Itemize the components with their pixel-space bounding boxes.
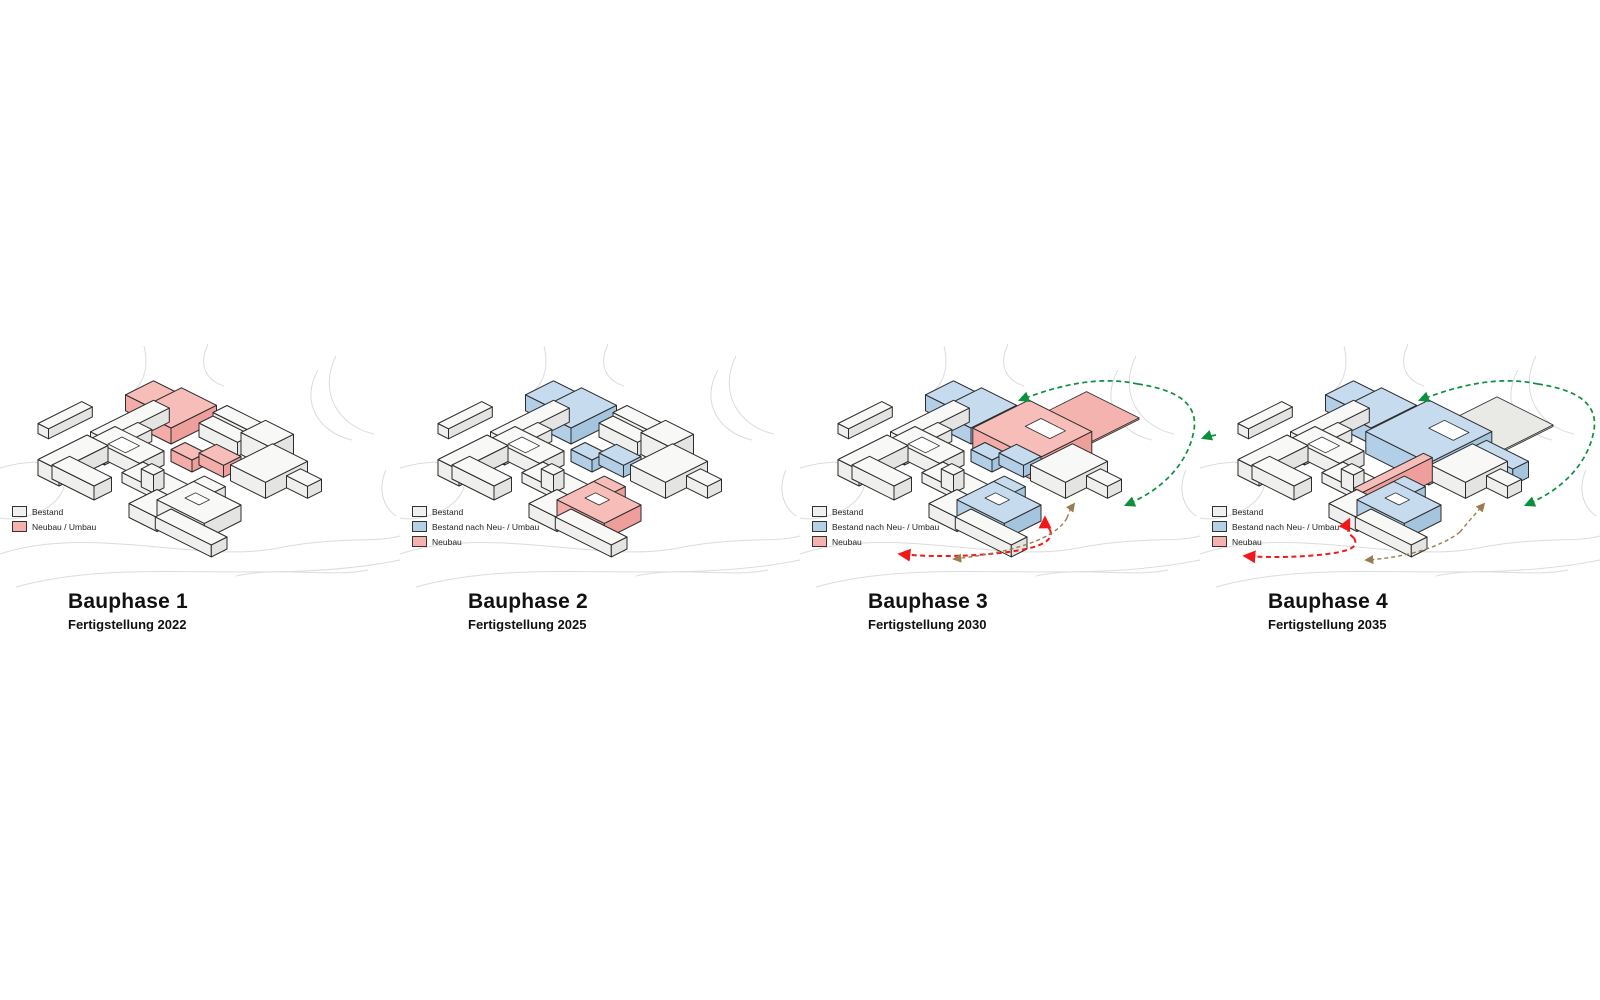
building-R4 bbox=[287, 469, 322, 499]
legend-swatch-bestand bbox=[412, 506, 427, 517]
building-R4 bbox=[1087, 469, 1122, 499]
phase-title: Bauphase 3 bbox=[868, 590, 988, 614]
building-SR bbox=[541, 464, 564, 493]
legend-item: Bestand bbox=[412, 506, 539, 517]
phasing-board: BestandNeubau / UmbauBauphase 1Fertigste… bbox=[0, 340, 1600, 660]
legend-p2: BestandBestand nach Neu- / UmbauNeubau bbox=[412, 506, 539, 551]
building-A bbox=[38, 402, 92, 439]
legend-swatch-umbau bbox=[812, 536, 827, 547]
legend-swatch-bestand bbox=[1212, 506, 1227, 517]
legend-item: Bestand bbox=[1212, 506, 1339, 517]
legend-label: Neubau bbox=[432, 537, 462, 547]
legend-swatch-umbau bbox=[412, 536, 427, 547]
legend-swatch-bestand bbox=[12, 506, 27, 517]
site-diagram-p4 bbox=[1200, 340, 1600, 600]
legend-swatch-umbau bbox=[1212, 536, 1227, 547]
site-diagram-p2 bbox=[400, 340, 800, 600]
legend-item: Bestand nach Neu- / Umbau bbox=[1212, 521, 1339, 532]
legend-item: Neubau bbox=[1212, 536, 1339, 547]
building-SR bbox=[941, 464, 964, 493]
legend-label: Neubau bbox=[832, 537, 862, 547]
legend-item: Bestand bbox=[812, 506, 939, 517]
phase-caption: Bauphase 2Fertigstellung 2025 bbox=[468, 590, 588, 632]
building-R4 bbox=[687, 469, 722, 499]
phase-panel-p2: BestandBestand nach Neu- / UmbauNeubauBa… bbox=[400, 340, 800, 660]
phase-subtitle: Fertigstellung 2035 bbox=[1268, 617, 1388, 632]
phase-caption: Bauphase 1Fertigstellung 2022 bbox=[68, 590, 188, 632]
legend-item: Bestand nach Neu- / Umbau bbox=[412, 521, 539, 532]
phase-panel-p1: BestandNeubau / UmbauBauphase 1Fertigste… bbox=[0, 340, 400, 660]
building-A bbox=[438, 402, 492, 439]
legend-label: Neubau / Umbau bbox=[32, 522, 96, 532]
phase-subtitle: Fertigstellung 2030 bbox=[868, 617, 988, 632]
legend-label: Bestand bbox=[832, 507, 863, 517]
phase-caption: Bauphase 3Fertigstellung 2030 bbox=[868, 590, 988, 632]
legend-label: Bestand nach Neu- / Umbau bbox=[1232, 522, 1339, 532]
building-SR bbox=[141, 464, 164, 493]
legend-label: Bestand nach Neu- / Umbau bbox=[432, 522, 539, 532]
legend-label: Bestand bbox=[32, 507, 63, 517]
legend-p3: BestandBestand nach Neu- / UmbauNeubau bbox=[812, 506, 939, 551]
legend-swatch-umbau bbox=[12, 521, 27, 532]
legend-swatch-blau bbox=[812, 521, 827, 532]
legend-item: Neubau bbox=[812, 536, 939, 547]
building-A bbox=[838, 402, 892, 439]
phase-panel-p4: BestandBestand nach Neu- / UmbauNeubauBa… bbox=[1200, 340, 1600, 660]
legend-item: Neubau bbox=[412, 536, 539, 547]
site-diagram-p1 bbox=[0, 340, 400, 600]
phase-panel-p3: BestandBestand nach Neu- / UmbauNeubauBa… bbox=[800, 340, 1200, 660]
legend-swatch-bestand bbox=[812, 506, 827, 517]
phase-title: Bauphase 2 bbox=[468, 590, 588, 614]
phase-caption: Bauphase 4Fertigstellung 2035 bbox=[1268, 590, 1388, 632]
legend-label: Bestand bbox=[432, 507, 463, 517]
legend-p4: BestandBestand nach Neu- / UmbauNeubau bbox=[1212, 506, 1339, 551]
legend-label: Bestand bbox=[1232, 507, 1263, 517]
legend-item: Bestand bbox=[12, 506, 96, 517]
legend-label: Bestand nach Neu- / Umbau bbox=[832, 522, 939, 532]
legend-swatch-blau bbox=[412, 521, 427, 532]
legend-item: Bestand nach Neu- / Umbau bbox=[812, 521, 939, 532]
phase-subtitle: Fertigstellung 2025 bbox=[468, 617, 588, 632]
legend-label: Neubau bbox=[1232, 537, 1262, 547]
phase-title: Bauphase 4 bbox=[1268, 590, 1388, 614]
legend-p1: BestandNeubau / Umbau bbox=[12, 506, 96, 536]
site-diagram-p3 bbox=[800, 340, 1200, 600]
route-arrow-greenLeft bbox=[1203, 435, 1216, 438]
phase-subtitle: Fertigstellung 2022 bbox=[68, 617, 188, 632]
building-A bbox=[1238, 402, 1292, 439]
legend-item: Neubau / Umbau bbox=[12, 521, 96, 532]
phase-title: Bauphase 1 bbox=[68, 590, 188, 614]
legend-swatch-blau bbox=[1212, 521, 1227, 532]
